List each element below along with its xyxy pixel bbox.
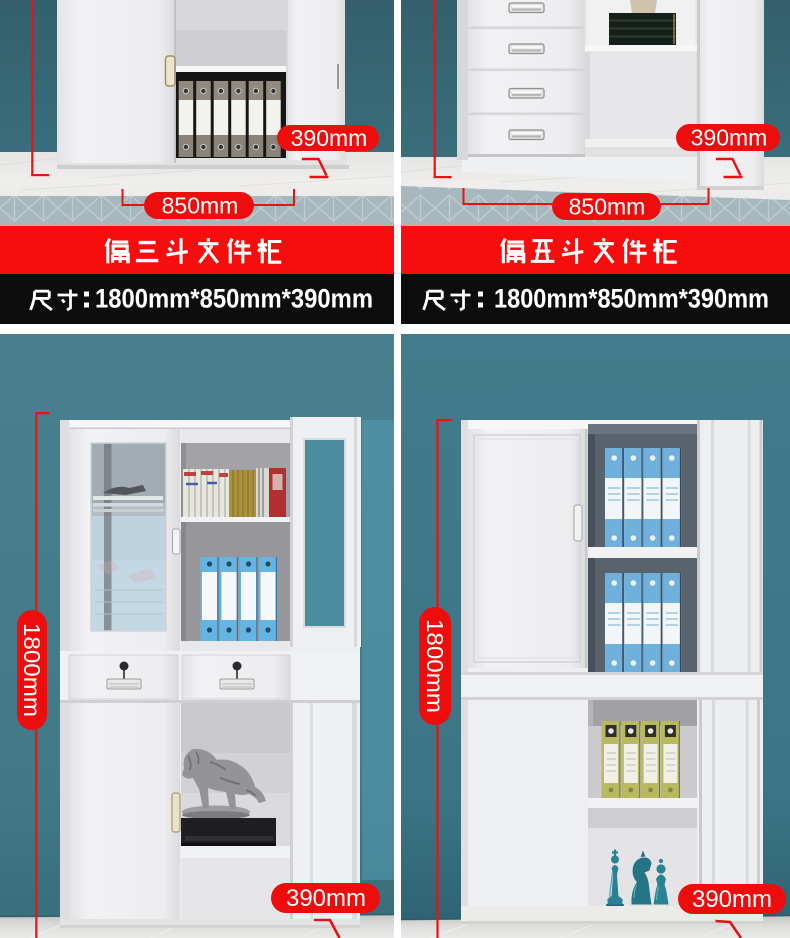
- svg-text:390mm: 390mm: [291, 125, 368, 151]
- svg-text:1800mm: 1800mm: [422, 619, 448, 713]
- svg-text:850mm: 850mm: [162, 193, 239, 219]
- svg-text:1800mm*850mm*390mm: 1800mm*850mm*390mm: [95, 284, 373, 314]
- svg-text:850mm: 850mm: [569, 194, 646, 220]
- svg-text:390mm: 390mm: [286, 885, 366, 912]
- svg-text:390mm: 390mm: [692, 886, 772, 913]
- svg-text:1800mm: 1800mm: [19, 623, 45, 717]
- svg-text:390mm: 390mm: [691, 125, 768, 151]
- svg-text:1800mm*850mm*390mm: 1800mm*850mm*390mm: [494, 284, 769, 314]
